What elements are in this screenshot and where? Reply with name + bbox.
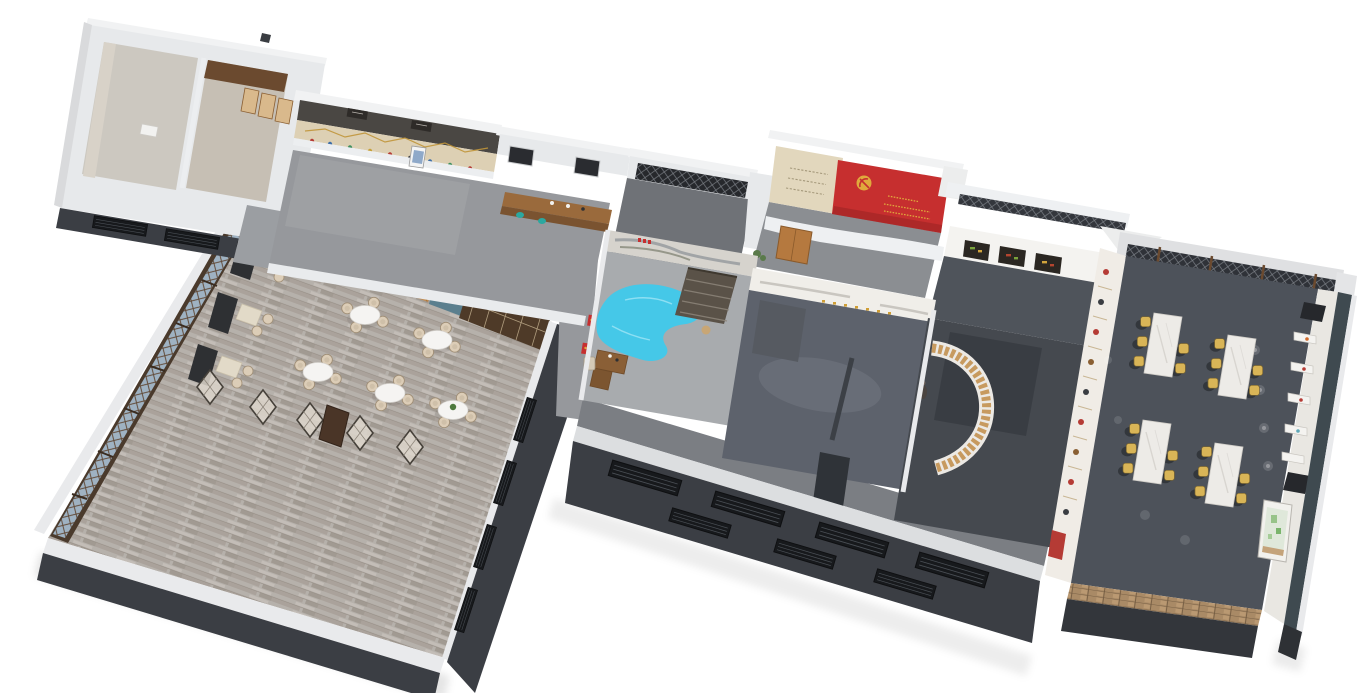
partition-screen xyxy=(752,300,806,362)
service-counter xyxy=(496,126,632,232)
banquet-table xyxy=(1118,420,1178,484)
party-emblem-icon xyxy=(857,176,872,191)
map-display xyxy=(1258,500,1292,562)
banquet-table xyxy=(1203,335,1263,399)
banner-exhibition-hall xyxy=(752,130,965,298)
gallery-media-screen-image xyxy=(412,150,424,164)
teal-stool xyxy=(516,212,524,218)
counter-item xyxy=(566,204,570,208)
pavilion-lantern-glow xyxy=(702,326,711,335)
teal-stool xyxy=(538,218,546,224)
floorplan-svg xyxy=(0,0,1357,693)
wood-door xyxy=(776,226,812,264)
desk-item xyxy=(608,354,612,358)
chimney xyxy=(260,33,271,43)
banquet-table xyxy=(1190,443,1250,507)
water-feature-room xyxy=(581,230,758,426)
counter-item xyxy=(581,207,585,211)
counter-item xyxy=(550,201,554,205)
floorplan-render xyxy=(0,0,1357,693)
beige-text-wall xyxy=(769,146,843,214)
table-plant xyxy=(450,404,456,410)
banquet-table xyxy=(1129,313,1189,377)
desk-item xyxy=(615,358,618,361)
